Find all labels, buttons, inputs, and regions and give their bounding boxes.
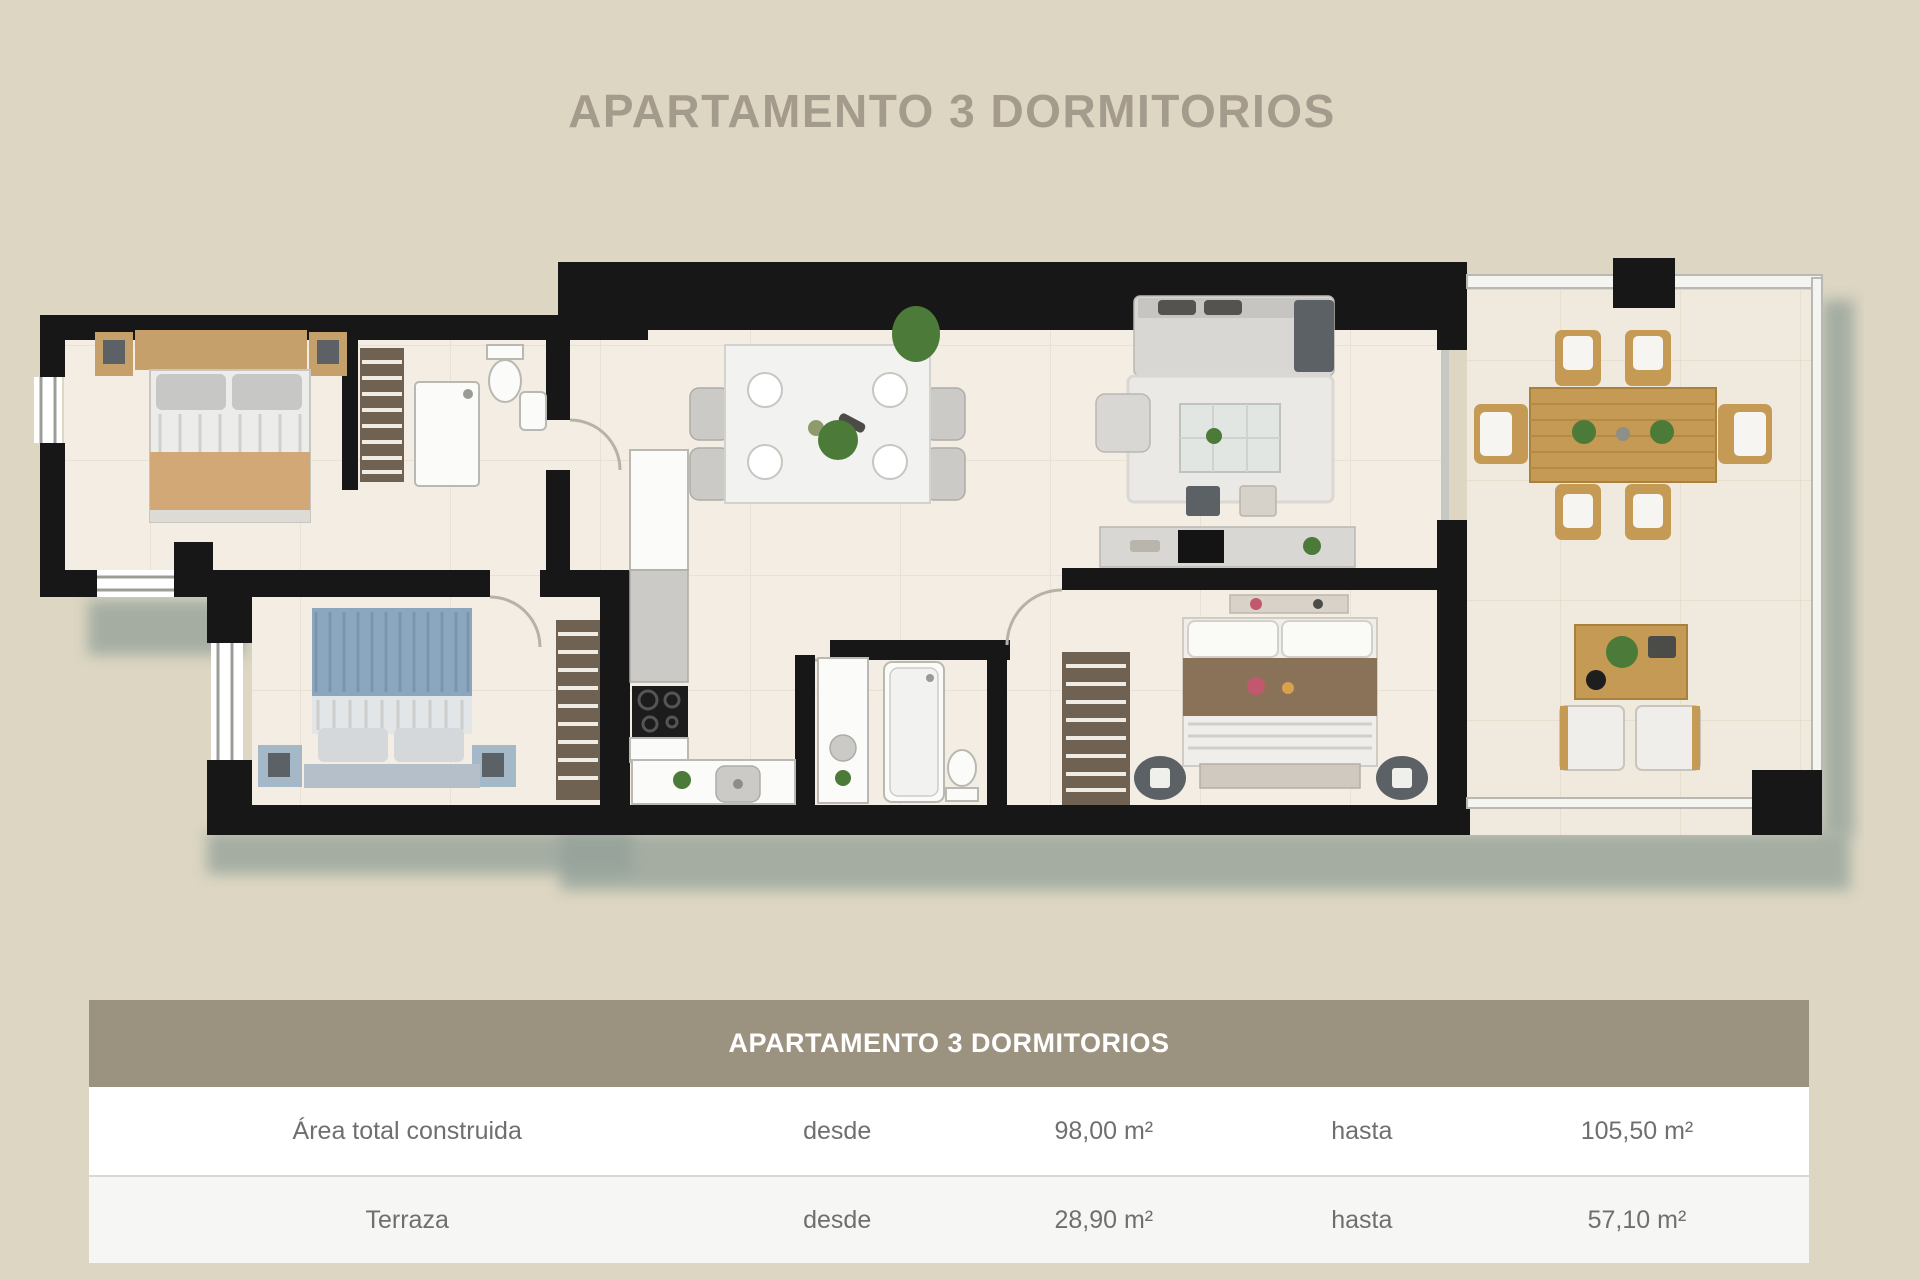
apartment-summary-table: APARTAMENTO 3 DORMITORIOS Área total con…: [89, 1000, 1809, 1263]
cooktop: [632, 686, 688, 738]
plant: [1206, 428, 1222, 444]
lamp: [1150, 768, 1170, 788]
floor-plan-drawing: [0, 0, 1920, 1000]
terrace-slider-glass: [1441, 350, 1449, 520]
coffee-table: [1180, 404, 1280, 472]
table-header-title: APARTAMENTO 3 DORMITORIOS: [728, 1028, 1169, 1059]
to-value: 105,50 m²: [1465, 1087, 1809, 1175]
window: [97, 570, 174, 597]
page: APARTAMENTO 3 DORMITORIOS: [0, 0, 1920, 1280]
wardrobe: [360, 348, 404, 482]
sink: [520, 392, 546, 430]
decor: [1250, 598, 1262, 610]
lamp: [268, 753, 290, 777]
chaise-cushion: [1294, 300, 1334, 372]
outdoor-table: [1530, 388, 1716, 482]
plant: [892, 306, 940, 362]
counter: [630, 738, 688, 762]
window: [211, 643, 243, 760]
table-row: Área total construida desde 98,00 m² has…: [89, 1087, 1809, 1175]
lounge-chair-arm: [1692, 706, 1700, 770]
terrace-right-shadow: [1822, 300, 1854, 835]
lamp: [1392, 768, 1412, 788]
toilet: [946, 750, 978, 801]
plant: [1303, 537, 1321, 555]
bedroom2-bottom-shadow: [207, 832, 632, 874]
lounge-chair: [1560, 706, 1624, 770]
shower-drain: [463, 389, 473, 399]
decor: [1313, 599, 1323, 609]
tv: [1178, 530, 1224, 563]
row-label: Terraza: [89, 1177, 725, 1263]
outdoor-coffee-table: [1575, 625, 1687, 699]
table-header: APARTAMENTO 3 DORMITORIOS: [89, 1000, 1809, 1087]
fridge: [630, 570, 688, 682]
bottom-shadow: [560, 832, 1850, 890]
foot-bench: [1200, 764, 1360, 788]
floor-plan: [0, 0, 1920, 1000]
double-bed: [150, 370, 310, 522]
from-value: 98,00 m²: [949, 1087, 1259, 1175]
plant: [818, 420, 858, 460]
double-bed: [1183, 618, 1377, 788]
wardrobe: [1062, 652, 1130, 805]
side-table: [1240, 486, 1276, 516]
to-value: 57,10 m²: [1465, 1177, 1809, 1263]
tv-console: [1100, 527, 1355, 567]
toilet: [487, 345, 523, 402]
kitchen-cabinet: [630, 450, 688, 570]
terrace-railing-right: [1812, 278, 1822, 833]
sink-counter: [632, 760, 795, 804]
plant: [1572, 420, 1596, 444]
lounge-chair-arm: [1560, 706, 1568, 770]
plant: [1606, 636, 1638, 668]
faucet: [733, 779, 743, 789]
side-table: [1186, 486, 1220, 516]
plant: [835, 770, 851, 786]
armchair: [1096, 394, 1150, 452]
sink: [830, 735, 856, 761]
lamp: [317, 340, 339, 364]
console-table: [1230, 595, 1348, 613]
bed-headboard: [135, 330, 307, 370]
living-room: [1096, 296, 1355, 567]
plant: [673, 771, 691, 789]
to-label: hasta: [1259, 1087, 1465, 1175]
from-value: 28,90 m²: [949, 1177, 1259, 1263]
row-label: Área total construida: [89, 1087, 725, 1175]
bathtub: [884, 662, 944, 802]
window: [34, 377, 62, 443]
wardrobe: [556, 620, 600, 800]
lamp: [482, 753, 504, 777]
from-label: desde: [725, 1177, 949, 1263]
plant: [1650, 420, 1674, 444]
lamp: [103, 340, 125, 364]
sofa: [1134, 296, 1334, 376]
from-label: desde: [725, 1087, 949, 1175]
lounge-chair: [1636, 706, 1700, 770]
table-row: Terraza desde 28,90 m² hasta 57,10 m²: [89, 1175, 1809, 1263]
to-label: hasta: [1259, 1177, 1465, 1263]
